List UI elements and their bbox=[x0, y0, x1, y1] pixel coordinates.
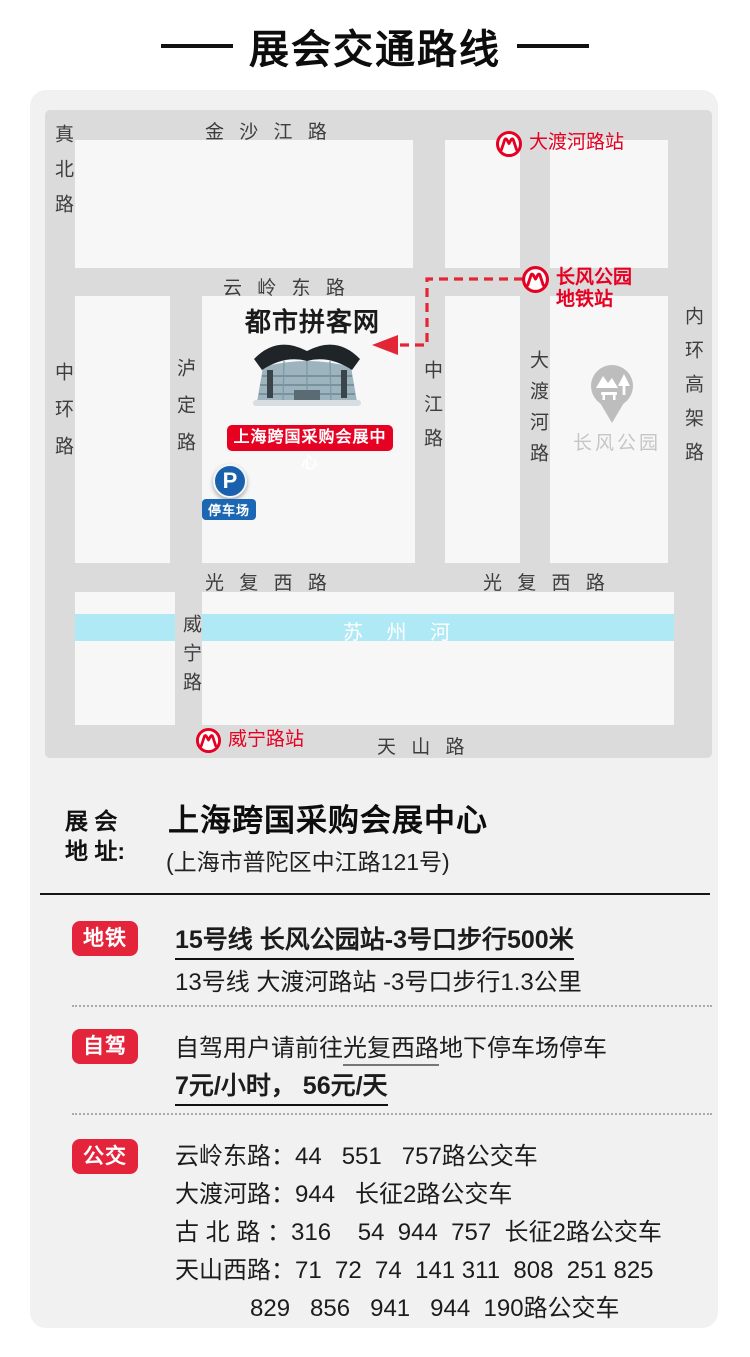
road-zhenbei: 真北路 bbox=[49, 124, 76, 229]
venue-address-detail: (上海市普陀区中江路121号) bbox=[166, 843, 450, 877]
drive-line-1-pre: 自驾用户请前往 bbox=[175, 1035, 343, 1062]
road-yunlingdong: 云 岭 东 路 bbox=[223, 273, 350, 300]
road-tianshan: 天 山 路 bbox=[377, 732, 470, 758]
park-pin-icon bbox=[586, 363, 638, 425]
bus-line-tianshanxi: 天山西路：71 72 74 141 311 808 251 825 bbox=[175, 1250, 654, 1285]
metro-line-2: 13号线 大渡河路站 -3号口步行1.3公里 bbox=[175, 962, 582, 997]
drive-line-1-post: 地下停车场停车 bbox=[439, 1035, 607, 1062]
route-map: 苏 州 河 金 沙 江 路 云 岭 东 路 光 复 西 路 光 复 西 路 天 … bbox=[45, 110, 712, 758]
metro-badge: 地铁 bbox=[72, 921, 138, 956]
map-block bbox=[550, 140, 668, 268]
station-weining-label: 威宁路站 bbox=[228, 729, 304, 751]
metro-logo-icon bbox=[195, 727, 222, 754]
bus-line-daduhe: 大渡河路：944 长征2路公交车 bbox=[175, 1174, 512, 1209]
drive-badge: 自驾 bbox=[72, 1029, 138, 1064]
bus-line-gubei: 古 北 路 ：316 54 944 757 长征2路公交车 bbox=[175, 1212, 662, 1247]
road-zhongjiang: 中江路 bbox=[418, 360, 445, 462]
road-jinshajiang: 金 沙 江 路 bbox=[205, 117, 332, 144]
walking-route-arrow bbox=[365, 268, 535, 360]
address-caption: 展 会 地 址: bbox=[65, 806, 145, 866]
road-neihuangaojia: 内环高架路 bbox=[679, 306, 706, 476]
map-block bbox=[75, 592, 175, 725]
road-guangfuxi-west: 光 复 西 路 bbox=[205, 568, 332, 595]
metro-line-1: 15号线 长风公园站-3号口步行500米 bbox=[175, 926, 574, 960]
map-block bbox=[445, 140, 520, 268]
bus-line-yunlingdong: 云岭东路：44 551 757路公交车 bbox=[175, 1136, 538, 1171]
river-label: 苏 州 河 bbox=[343, 616, 459, 645]
bus-badge: 公交 bbox=[72, 1139, 138, 1174]
drive-price-line: 7元/小时， 56元/天 bbox=[175, 1072, 388, 1106]
map-block bbox=[75, 296, 170, 563]
drive-divider bbox=[72, 1113, 712, 1115]
park-name: 长风公园 bbox=[573, 428, 661, 455]
drive-line-1-road: 光复西路 bbox=[343, 1035, 439, 1066]
title-left-dash bbox=[161, 44, 233, 48]
address-divider bbox=[40, 893, 710, 895]
map-block bbox=[75, 140, 413, 268]
station-changfeng-label-2: 地铁站 bbox=[556, 289, 632, 311]
station-changfeng-label-1: 长风公园 bbox=[556, 267, 632, 289]
metro-logo-icon bbox=[521, 265, 550, 294]
page-header: 展会交通路线 bbox=[0, 14, 750, 78]
parking-icon: P bbox=[213, 464, 247, 498]
suzhou-river-west bbox=[75, 614, 175, 641]
drive-line-1: 自驾用户请前往光复西路地下停车场停车 bbox=[175, 1028, 607, 1063]
metro-logo-icon bbox=[495, 130, 523, 158]
station-daduhe-label: 大渡河路站 bbox=[529, 132, 624, 154]
road-zhonghuan: 中环路 bbox=[49, 362, 76, 473]
metro-divider bbox=[72, 1005, 712, 1007]
station-daduhe: 大渡河路站 bbox=[495, 130, 624, 158]
map-block bbox=[202, 592, 674, 725]
bus-line-tianshanxi-cont: 829 856 941 944 190路公交车 bbox=[250, 1288, 620, 1323]
station-weining: 威宁路站 bbox=[195, 727, 304, 754]
road-weining: 威宁路 bbox=[177, 614, 204, 701]
title-right-dash bbox=[517, 44, 589, 48]
traffic-route-page: 展会交通路线 苏 州 河 金 沙 江 路 云 岭 东 路 光 复 西 路 光 复… bbox=[0, 0, 750, 1357]
road-guangfuxi-east: 光 复 西 路 bbox=[483, 568, 610, 595]
venue-name-label: 上海跨国采购会展中心 bbox=[227, 425, 393, 451]
road-luding: 泸定路 bbox=[171, 358, 198, 469]
page-title: 展会交通路线 bbox=[249, 17, 501, 75]
venue-building-image bbox=[250, 334, 364, 412]
venue-address-name: 上海跨国采购会展中心 bbox=[168, 795, 488, 840]
parking-label: 停车场 bbox=[202, 499, 256, 520]
road-daduhe: 大渡河路 bbox=[524, 350, 551, 474]
station-changfeng: 长风公园 地铁站 bbox=[521, 265, 632, 311]
